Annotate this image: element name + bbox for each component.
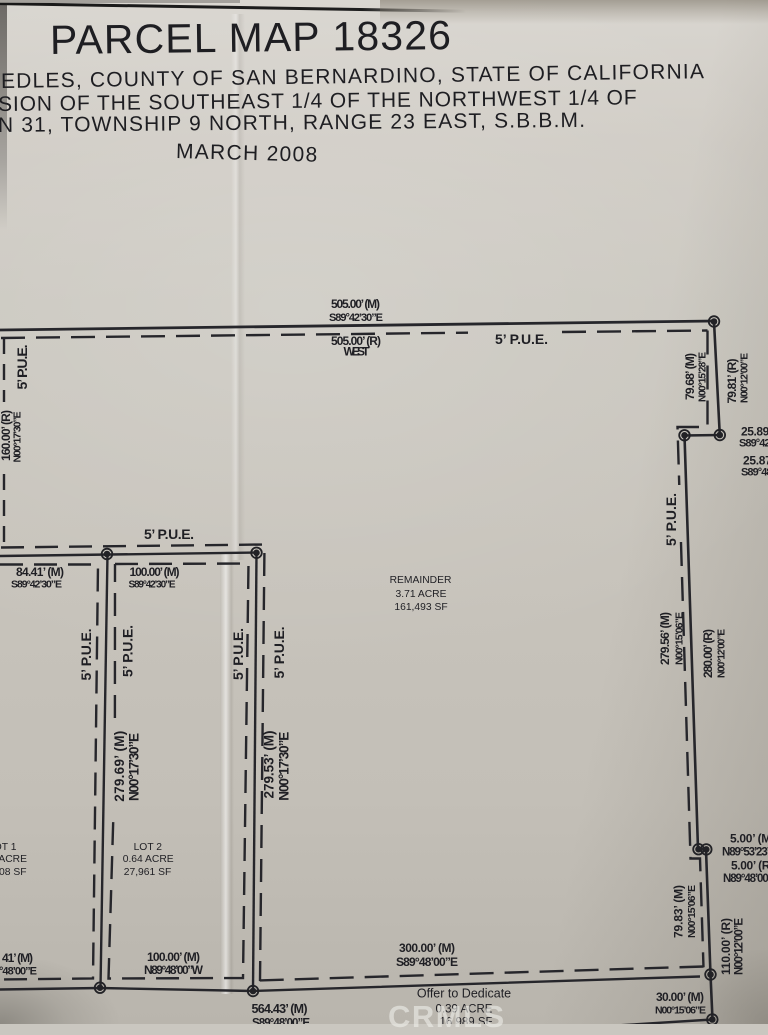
svg-text:REMAINDER: REMAINDER [390,575,452,586]
svg-text:161,493 SF: 161,493 SF [394,602,447,613]
svg-text:S89°48’00”E: S89°48’00”E [741,467,768,479]
svg-text:N00°12’00”E: N00°12’00”E [734,918,746,975]
svg-text:505.00’ (M): 505.00’ (M) [331,297,380,311]
svg-text:LOT 1: LOT 1 [0,842,17,853]
svg-text:S89°48’00”E: S89°48’00”E [396,955,458,969]
svg-text:S89°42’30”E: S89°42’30”E [739,438,768,450]
svg-text:N00°17’30”E: N00°17’30”E [277,732,292,801]
svg-text:N89°48’00”W: N89°48’00”W [144,963,204,977]
svg-text:5’ P.U.E.: 5’ P.U.E. [78,629,94,681]
svg-text:5’ P.U.E.: 5’ P.U.E. [230,628,246,680]
svg-text:N00°12’00”E: N00°12’00”E [717,629,728,678]
svg-text:25.87’ (R): 25.87’ (R) [743,454,768,468]
svg-text:N00°12’00”E: N00°12’00”E [740,353,751,403]
svg-text:5’ P.U.E.: 5’ P.U.E. [144,526,194,542]
svg-text:N00°17’30”E: N00°17’30”E [12,412,24,463]
svg-text:S89°48’00”E: S89°48’00”E [252,1018,310,1025]
svg-text:5.00’ (M): 5.00’ (M) [730,832,768,846]
svg-text:S89°42’30”E: S89°42’30”E [11,579,62,591]
svg-text:LOT 2: LOT 2 [134,842,163,853]
svg-text:25.89’ (M): 25.89’ (M) [741,425,768,439]
svg-text:N00°15’28”E: N00°15’28”E [698,352,709,402]
svg-text:N00°15’06”E: N00°15’06”E [686,885,698,938]
svg-text:27,961 SF: 27,961 SF [124,867,172,878]
svg-text:30.00’ (M): 30.00’ (M) [656,990,704,1004]
svg-text:5’ P.U.E.: 5’ P.U.E. [14,345,30,390]
svg-text:3.71 ACRE: 3.71 ACRE [396,589,447,600]
svg-text:22,708 SF: 22,708 SF [0,867,27,878]
svg-text:0.64 ACRE: 0.64 ACRE [123,854,174,865]
svg-text:5’ P.U.E.: 5’ P.U.E. [495,331,548,347]
svg-text:300.00’ (M): 300.00’ (M) [399,941,455,955]
svg-text:79.83’ (M): 79.83’ (M) [671,885,685,938]
svg-text:WEST: WEST [344,345,371,359]
svg-text:564.43’ (M): 564.43’ (M) [252,1002,308,1016]
svg-text:279.53’ (M): 279.53’ (M) [261,731,276,799]
svg-text:5’ P.U.E.: 5’ P.U.E. [120,625,136,677]
svg-text:N00°15’06”E: N00°15’06”E [655,1005,706,1017]
svg-text:5.00’ (R): 5.00’ (R) [731,859,768,873]
svg-text:84.41’ (M): 84.41’ (M) [16,565,64,579]
svg-text:79.68’ (M): 79.68’ (M) [683,353,697,400]
svg-text:°48’00”E: °48’00”E [0,966,37,978]
svg-text:100.00’ (M): 100.00’ (M) [147,950,200,964]
svg-text:N89°53’23”E: N89°53’23”E [722,847,768,859]
svg-text:100.00’ (M): 100.00’ (M) [130,565,180,579]
svg-text:5’ P.U.E.: 5’ P.U.E. [271,627,287,679]
svg-text:N00°15’06”E: N00°15’06”E [674,612,686,665]
svg-text:279.56’ (M): 279.56’ (M) [658,612,672,665]
svg-text:N89°48’00”E: N89°48’00”E [723,873,768,885]
svg-text:S89°42’30”E: S89°42’30”E [329,312,383,324]
svg-text:279.69’ (M): 279.69’ (M) [112,731,127,802]
svg-text:N00°17’30”E: N00°17’30”E [127,733,142,801]
svg-text:S89°42’30”E: S89°42’30”E [129,580,176,591]
svg-text:41’ (M): 41’ (M) [2,951,33,965]
svg-text:79.81’ (R): 79.81’ (R) [725,359,739,404]
svg-text:0.52 ACRE: 0.52 ACRE [0,854,27,865]
svg-text:280.00’ (R): 280.00’ (R) [701,629,715,678]
svg-text:110.00’ (R): 110.00’ (R) [719,918,733,975]
svg-text:5’ P.U.E.: 5’ P.U.E. [663,493,679,546]
